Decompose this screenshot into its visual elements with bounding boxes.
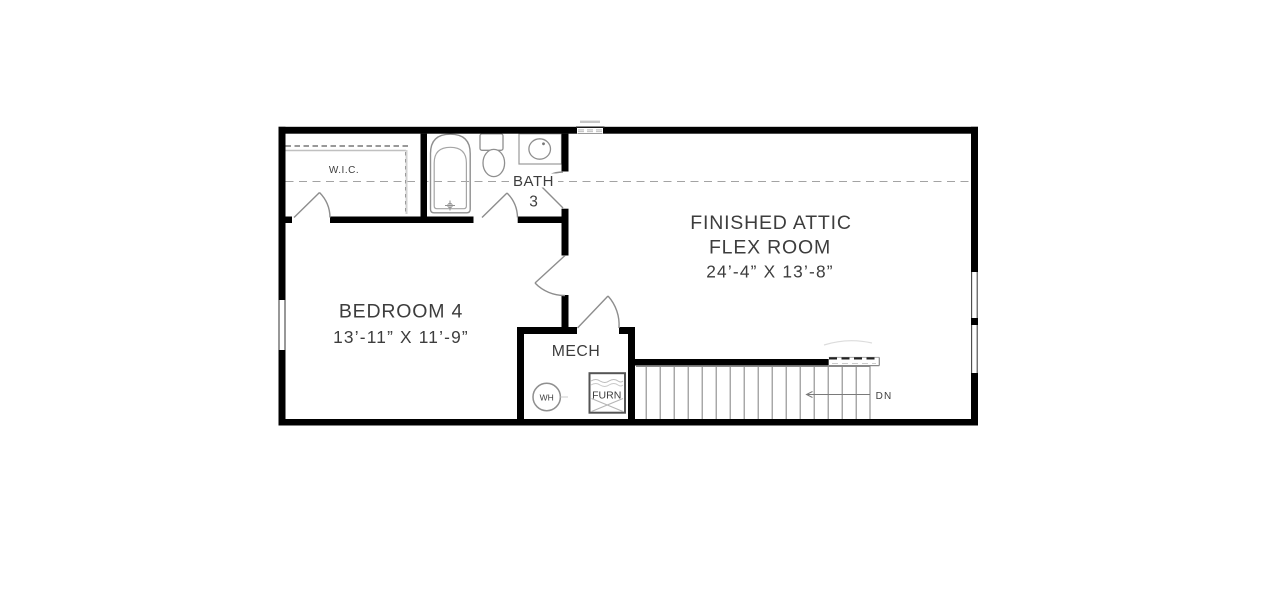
svg-text:W.I.C.: W.I.C. xyxy=(329,165,359,176)
svg-text:MECH: MECH xyxy=(552,343,601,360)
svg-text:FINISHED ATTIC: FINISHED ATTIC xyxy=(690,212,851,234)
svg-text:DN: DN xyxy=(876,391,893,402)
svg-text:BATH: BATH xyxy=(513,173,554,190)
svg-text:FLEX ROOM: FLEX ROOM xyxy=(709,237,831,259)
svg-text:13’-11” X 11’-9”: 13’-11” X 11’-9” xyxy=(333,327,469,347)
svg-text:BEDROOM 4: BEDROOM 4 xyxy=(339,301,463,323)
svg-text:FURN: FURN xyxy=(592,390,621,402)
svg-text:3: 3 xyxy=(529,194,538,211)
svg-text:24’-4” X 13’-8”: 24’-4” X 13’-8” xyxy=(706,262,834,282)
svg-text:WH: WH xyxy=(540,393,554,403)
